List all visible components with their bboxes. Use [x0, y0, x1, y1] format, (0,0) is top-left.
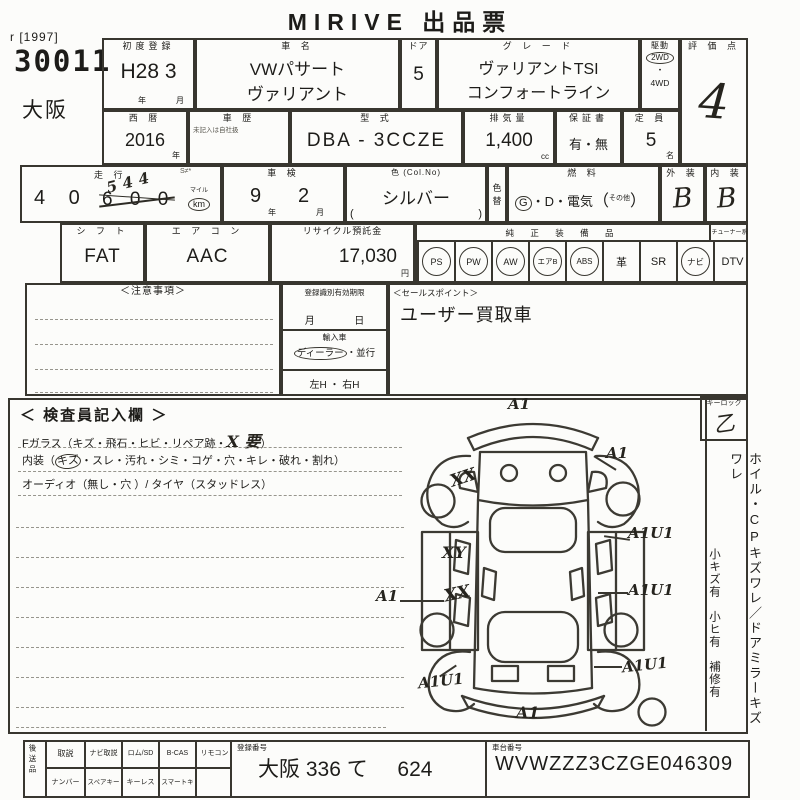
mileage-note: S≠*	[180, 168, 191, 175]
blank-line	[18, 471, 402, 472]
sales-point-value: ユーザー買取車	[390, 299, 746, 327]
unit-mile: マイル	[182, 185, 216, 194]
color-label: 色 (Col.No)	[347, 167, 485, 178]
recycle-fee-label: リサイクル預託金	[272, 225, 413, 237]
keylock-mark-handwritten: 乙	[700, 405, 748, 441]
import-dealer-circled: ディーラー	[294, 347, 347, 360]
aircon-label: エ ア コ ン	[147, 225, 268, 237]
import-label: 輸入車	[283, 331, 386, 343]
handle-position: 左H ・ 右H	[283, 371, 386, 391]
color-change-cell: 色替	[487, 165, 507, 223]
leader-line	[400, 600, 444, 602]
inspection-label: 車 検	[224, 167, 343, 179]
equipment-label: 純 正 装 備 品	[417, 225, 711, 242]
equipment-item: SR	[639, 242, 676, 281]
color-cell: 色 (Col.No) シルバー ( )	[345, 165, 487, 223]
fuel-label: 燃 料	[509, 167, 658, 179]
score-value-handwritten: 4	[680, 72, 748, 132]
blank-line	[16, 677, 404, 678]
blank-line	[35, 369, 273, 370]
grade-line1: ヴァリアントTSI	[439, 55, 638, 79]
doors-value: 5	[402, 64, 435, 86]
registration-number-label: 登録番号	[232, 740, 485, 753]
doors-cell: ドア 5	[400, 38, 437, 110]
interior-grade-handwritten: B	[706, 182, 747, 216]
inspector-label: ＜ 検査員記入欄 ＞	[20, 404, 168, 425]
grade-cell: グ レ ー ド ヴァリアントTSI コンフォートライン	[437, 38, 640, 110]
exterior-grade-cell: 外 装 B	[660, 165, 705, 223]
right-rear-wheel	[605, 614, 638, 647]
inspector-line-audio-tire: オーディオ（無し・穴 ）/ タイヤ（スタッドレス）	[22, 476, 272, 492]
equipment-tuner-label: チューナー系	[711, 225, 748, 242]
damage-mark: A1	[376, 587, 398, 605]
car-name-line2: ヴァリアント	[197, 80, 398, 105]
warranty-cell: 保証書 有・無	[555, 110, 622, 165]
aircon-cell: エ ア コ ン AAC	[145, 223, 270, 283]
inspection-cell: 車 検 9 年 2 月	[222, 165, 345, 223]
equipment-item: AW	[491, 242, 528, 281]
inspector-line-interior: 内装（キズ・スレ・汚れ・シミ・コゲ・穴・キレ・破れ・割れ）	[22, 452, 345, 469]
validity-label: 登録識別有効期限	[283, 285, 386, 298]
interior-kizu-circled: キズ	[55, 453, 82, 470]
inspection-year: 9	[250, 185, 261, 208]
shipping-item: ナンバー	[47, 769, 84, 798]
interior-grade-cell: 内 装 B	[705, 165, 748, 223]
grade-label: グ レ ー ド	[439, 40, 638, 52]
unit-month: 月	[176, 95, 184, 106]
right-front-wheel	[607, 483, 640, 516]
equipment-item: 革	[602, 242, 639, 281]
color-change-label: 色替	[491, 173, 504, 219]
capacity-value: 5	[624, 130, 678, 152]
first-registration-value: H28 3	[104, 60, 193, 84]
blank-line	[16, 727, 386, 728]
year-cell: 西 暦 2016 年	[102, 110, 188, 165]
damage-mark: A1	[508, 395, 530, 413]
shipping-grid: 取説 ナビ取説 ロム/SD B-CAS リモコン ナンバー スペアキー キーレス…	[45, 740, 230, 798]
shipping-item: ロム/SD	[121, 740, 158, 769]
venue: 大阪	[22, 94, 68, 124]
fuel-paren-left: （	[593, 193, 609, 210]
shipping-item: ナビ取説	[84, 740, 121, 769]
blank-line	[18, 495, 402, 496]
warranty-label: 保証書	[557, 112, 620, 124]
fuel-options: ・D・電気	[532, 194, 593, 209]
registration-number-cell: 登録番号 大阪 336 て 624	[230, 740, 485, 798]
unit-year: 年	[268, 207, 276, 218]
first-registration-cell: 初度登録 H28 3 年 月	[102, 38, 195, 110]
drive-separator: ・	[642, 64, 678, 77]
fuel-gasoline-circled: G	[515, 196, 532, 211]
equipment-item: PW	[454, 242, 491, 281]
page-title: MIRIVE 出品票	[0, 3, 800, 37]
aircon-value: AAC	[147, 246, 268, 268]
blank-line	[16, 557, 404, 558]
chassis-number-cell: 車台番号 WVWZZZ3CZGE046309	[485, 740, 750, 798]
first-registration-label: 初度登録	[104, 40, 193, 52]
validity-import-box: 登録識別有効期限 月 日 輸入車 ディーラー・並行 左H ・ 右H	[281, 283, 388, 396]
equipment-aw-circled: AW	[496, 247, 525, 276]
car-name-label: 車 名	[197, 40, 398, 52]
chassis-number-value: WVWZZZ3CZGE046309	[487, 753, 750, 776]
equipment-item: ナビ	[676, 242, 713, 281]
plate-number: 624	[397, 758, 432, 781]
capacity-label: 定 員	[624, 112, 678, 124]
caution-notes-label: ＜注意事項＞	[27, 285, 279, 299]
unit-yen: 円	[401, 268, 409, 279]
model-code-label: 型 式	[292, 112, 461, 124]
corner-ref: r [1997]	[10, 30, 59, 44]
side-note-wheel-mirror: ホイル・CPキズワレ／ドアミラーキズ ワレ	[726, 452, 764, 730]
auction-sheet: MIRIVE 出品票 r [1997] 30011 大阪 初度登録 H28 3 …	[0, 0, 800, 800]
plate-region: 大阪 336 て	[258, 758, 368, 781]
shipping-items-label: 後送品	[27, 744, 38, 794]
validity-month: 月	[305, 316, 315, 327]
validity-day: 日	[354, 316, 364, 327]
blank-line	[16, 707, 404, 708]
interior-options: ・スレ・汚れ・シミ・コゲ・穴・キレ・破れ・割れ）	[81, 455, 345, 467]
damage-mark: A1U1	[628, 524, 674, 542]
shipping-item: スペアキー	[84, 769, 121, 798]
sales-point-label: ＜セールスポイント＞	[390, 285, 746, 299]
recycle-fee-value: 17,030	[272, 246, 413, 268]
unit-persons: 名	[666, 150, 674, 161]
equipment-abs-circled: ABS	[570, 247, 599, 276]
damage-mark: A1	[516, 703, 540, 722]
mileage-digits: 4 0	[34, 187, 89, 209]
unit-year: 年	[138, 95, 146, 106]
leader-line	[598, 592, 628, 594]
rear-window	[488, 612, 578, 662]
blank-line	[35, 319, 273, 320]
equipment-ps-circled: PS	[422, 247, 451, 276]
equipment-airbag-circled: エアB	[533, 247, 562, 276]
shipping-item-empty	[195, 769, 232, 798]
blank-line	[18, 447, 402, 448]
score-label: 評 価 点	[682, 40, 746, 52]
fuel-paren-right: ）	[630, 193, 646, 210]
left-rear-wheel	[421, 614, 454, 647]
displacement-value: 1,400	[465, 130, 553, 152]
damage-mark: XY	[442, 543, 466, 562]
interior-prefix: 内装（	[22, 455, 55, 467]
color-value: シルバー	[347, 184, 485, 209]
blank-line	[16, 647, 404, 648]
unit-cc: cc	[541, 152, 549, 161]
equipment-item: PS	[417, 242, 454, 281]
year-value: 2016	[104, 130, 186, 151]
capacity-cell: 定 員 5 名	[622, 110, 680, 165]
damage-mark: A1	[606, 444, 628, 462]
equipment-navi-circled: ナビ	[681, 247, 710, 276]
model-code-value: DBA - 3CCZE	[292, 130, 461, 152]
model-code-cell: 型 式 DBA - 3CCZE	[290, 110, 463, 165]
shift-label: シ フ ト	[62, 225, 143, 237]
chassis-number-label: 車台番号	[487, 740, 750, 753]
shipping-item: B-CAS	[158, 740, 195, 769]
recycle-fee-cell: リサイクル預託金 17,030 円	[270, 223, 415, 283]
equipment-cell: 純 正 装 備 品 チューナー系 PS PW AW エアB ABS 革 SR ナ…	[415, 223, 748, 283]
car-name-cell: 車 名 VWパサート ヴァリアント	[195, 38, 400, 110]
drive-label: 駆動	[642, 40, 678, 51]
equipment-dtv: DTV	[722, 256, 744, 268]
drive-cell: 駆動 2WD ・ 4WD	[640, 38, 680, 110]
equipment-leather: 革	[616, 254, 627, 270]
exterior-label: 外 装	[662, 167, 703, 179]
side-note-small-damage: 小キズ有 小ヒ有 補修有	[706, 548, 722, 732]
blank-line	[35, 344, 273, 345]
mileage-struck-wrap: 6 0 0 544	[102, 189, 174, 211]
blank-line	[35, 392, 273, 393]
history-cell: 車 歴 未記入は自社扱	[188, 110, 290, 165]
blank-line	[16, 587, 404, 588]
damage-mark: A1U1	[628, 581, 674, 599]
grade-line2: コンフォートライン	[439, 79, 638, 103]
shipping-item: リモコン	[195, 740, 232, 769]
mileage-cell: 走 行 S≠* 4 0 6 0 0 544 マイル km	[20, 165, 222, 223]
drive-4wd: 4WD	[642, 77, 678, 90]
inspector-line-fglass: Fガラス（キズ・飛石・ヒビ・リペア跡・X 要）	[22, 428, 272, 452]
fuel-other: その他	[609, 195, 630, 202]
displacement-cell: 排気量 1,400 cc	[463, 110, 555, 165]
left-front-wheel	[422, 485, 455, 518]
front-bumper-inner	[474, 437, 592, 450]
unit-year: 年	[172, 150, 180, 161]
hood-panel	[478, 452, 588, 506]
fuel-cell: 燃 料 G・D・電気（その他）	[507, 165, 660, 223]
blank-line	[16, 617, 404, 618]
shift-cell: シ フ ト FAT	[60, 223, 145, 283]
equipment-item: ABS	[565, 242, 602, 281]
caution-notes-box: ＜注意事項＞	[25, 283, 281, 396]
right-front-fender	[596, 456, 639, 527]
car-name-line1: VWパサート	[197, 55, 398, 80]
score-cell: 評 価 点 4	[680, 38, 748, 165]
history-note: 未記入は自社扱	[190, 124, 288, 134]
import-parallel: 並行	[356, 348, 375, 359]
keylock-box: キーロック 乙	[700, 396, 748, 441]
windshield	[490, 508, 576, 552]
import-separator: ・	[347, 348, 357, 359]
fglass-paren: ）	[261, 438, 272, 450]
interior-label: 内 装	[707, 167, 746, 179]
exterior-grade-handwritten: B	[661, 182, 704, 216]
blank-line	[16, 527, 404, 528]
history-label: 車 歴	[190, 112, 288, 124]
inspector-stamp-circle	[639, 699, 666, 726]
fglass-x-required-handwritten: X 要	[227, 432, 261, 451]
shipping-item: 取説	[47, 740, 84, 769]
right-mirror	[588, 472, 607, 492]
fglass-options: Fガラス（キズ・飛石・ヒビ・リペア跡・	[22, 438, 227, 450]
year-label: 西 暦	[104, 112, 186, 124]
displacement-label: 排気量	[465, 112, 553, 124]
shift-value: FAT	[62, 246, 143, 268]
inspection-month: 2	[298, 185, 309, 208]
colno-paren-left: (	[350, 208, 354, 220]
lot-number: 30011	[14, 44, 111, 78]
shipping-item: キーレス	[121, 769, 158, 798]
colno-paren-right: )	[478, 208, 482, 220]
doors-label: ドア	[402, 40, 435, 52]
shipping-item: スマートキー	[158, 769, 195, 798]
unit-month: 月	[316, 207, 324, 218]
equipment-item: エアB	[528, 242, 565, 281]
equipment-sr: SR	[651, 256, 666, 268]
unit-km-circled: km	[188, 198, 210, 211]
equipment-pw-circled: PW	[459, 247, 488, 276]
equipment-item: DTV	[713, 242, 750, 281]
drive-2wd-circled: 2WD	[646, 52, 674, 64]
leader-line	[594, 666, 622, 668]
warranty-value: 有・無	[557, 134, 620, 153]
sales-point-box: ＜セールスポイント＞ ユーザー買取車	[388, 283, 748, 396]
